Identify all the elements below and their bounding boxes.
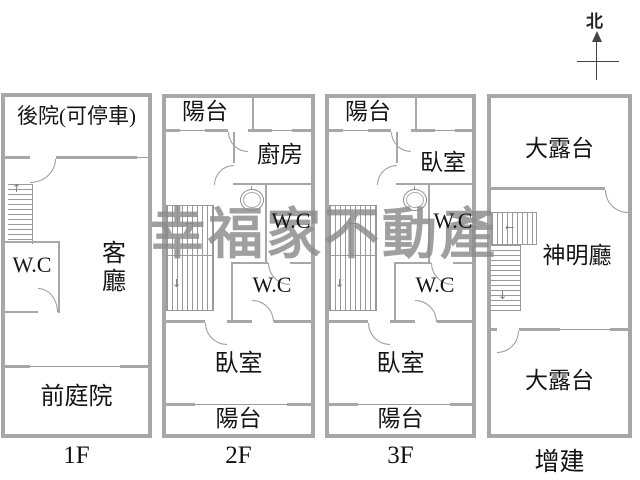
wall — [610, 328, 628, 331]
wall — [390, 320, 415, 323]
window-line — [137, 157, 148, 158]
wall — [396, 183, 472, 185]
wall — [58, 241, 60, 313]
room-label-balcony-top-2f: 陽台 — [170, 99, 240, 125]
window-line — [343, 130, 368, 131]
wall — [166, 320, 205, 323]
room-label-backyard: 後院(可停車) — [6, 104, 147, 128]
room-label-balcony-top-3f: 陽台 — [333, 99, 403, 125]
window-line — [560, 329, 610, 330]
wall — [519, 328, 560, 331]
room-label-bedroom-upper-3f: 臥室 — [415, 150, 471, 176]
wall — [205, 129, 228, 132]
room-label-wc-1f: W.C — [8, 252, 56, 277]
wall — [415, 98, 417, 131]
north-arrow-icon — [592, 31, 602, 42]
wall — [329, 129, 343, 132]
room-label-bedroom-2f: 臥室 — [162, 351, 315, 379]
room-label-shrine-hall: 神明廳 — [533, 243, 621, 269]
floor-plan-image: 北 幸福家不動產 後院(可停車) ↑ W.C 客廳 前庭院 1F 陽台 廚房 W… — [0, 0, 640, 480]
wall — [455, 129, 472, 132]
north-label: 北 — [586, 7, 603, 32]
wall — [5, 365, 30, 368]
room-label-living-room: 客廳 — [101, 240, 127, 297]
wall — [274, 320, 311, 323]
wall — [5, 241, 60, 243]
floor-label-1f: 1F — [1, 442, 152, 470]
room-label-balcony-bottom-3f: 陽台 — [325, 406, 476, 432]
north-compass: 北 — [570, 5, 630, 85]
window-line — [180, 130, 205, 131]
room-label-bedroom-3f: 臥室 — [325, 351, 476, 379]
sink-tap — [414, 186, 415, 190]
wall — [329, 320, 368, 323]
sink-tap — [251, 186, 252, 190]
stair-arrow-icon: ↓ — [172, 278, 181, 289]
wall — [368, 129, 391, 132]
wall — [396, 132, 398, 163]
wall — [248, 129, 272, 132]
wall — [5, 311, 38, 313]
room-label-kitchen: 廚房 — [252, 142, 308, 168]
stair-arrow-icon: ↓ — [335, 278, 344, 289]
wall — [394, 262, 396, 322]
floor-label-2f: 2F — [162, 442, 315, 470]
window-line — [435, 130, 455, 131]
window-line — [358, 404, 450, 405]
window-line — [272, 130, 292, 131]
wall — [233, 183, 311, 185]
room-label-wc-upper-2f: W.C — [268, 208, 314, 233]
room-label-wc-lower-3f: W.C — [406, 272, 464, 297]
wall — [292, 129, 311, 132]
room-label-balcony-bottom-2f: 陽台 — [162, 406, 315, 432]
window-line — [30, 366, 120, 367]
room-label-front-yard: 前庭院 — [6, 384, 147, 412]
floor-label-annex: 增建 — [487, 442, 632, 478]
room-label-terrace-top: 大露台 — [491, 136, 628, 162]
wall — [166, 129, 180, 132]
wall — [5, 156, 30, 159]
floor-label-3f: 3F — [325, 442, 476, 470]
wall — [491, 187, 605, 190]
wall — [227, 320, 252, 323]
wall — [120, 365, 148, 368]
stair-arrow-icon: ↓ — [498, 290, 507, 301]
wall — [233, 132, 235, 163]
stair-arrow-icon: ← — [505, 222, 514, 233]
stair-arrow-icon: ↑ — [12, 183, 21, 194]
room-label-wc-lower-2f: W.C — [243, 272, 301, 297]
wall — [437, 320, 472, 323]
wall — [231, 262, 233, 322]
room-label-wc-upper-3f: W.C — [430, 208, 476, 233]
room-label-terrace-bottom: 大露台 — [491, 368, 628, 394]
wall — [252, 98, 254, 131]
wall — [411, 129, 435, 132]
window-line — [195, 404, 287, 405]
north-crossbar — [577, 61, 619, 62]
wall — [56, 156, 137, 159]
